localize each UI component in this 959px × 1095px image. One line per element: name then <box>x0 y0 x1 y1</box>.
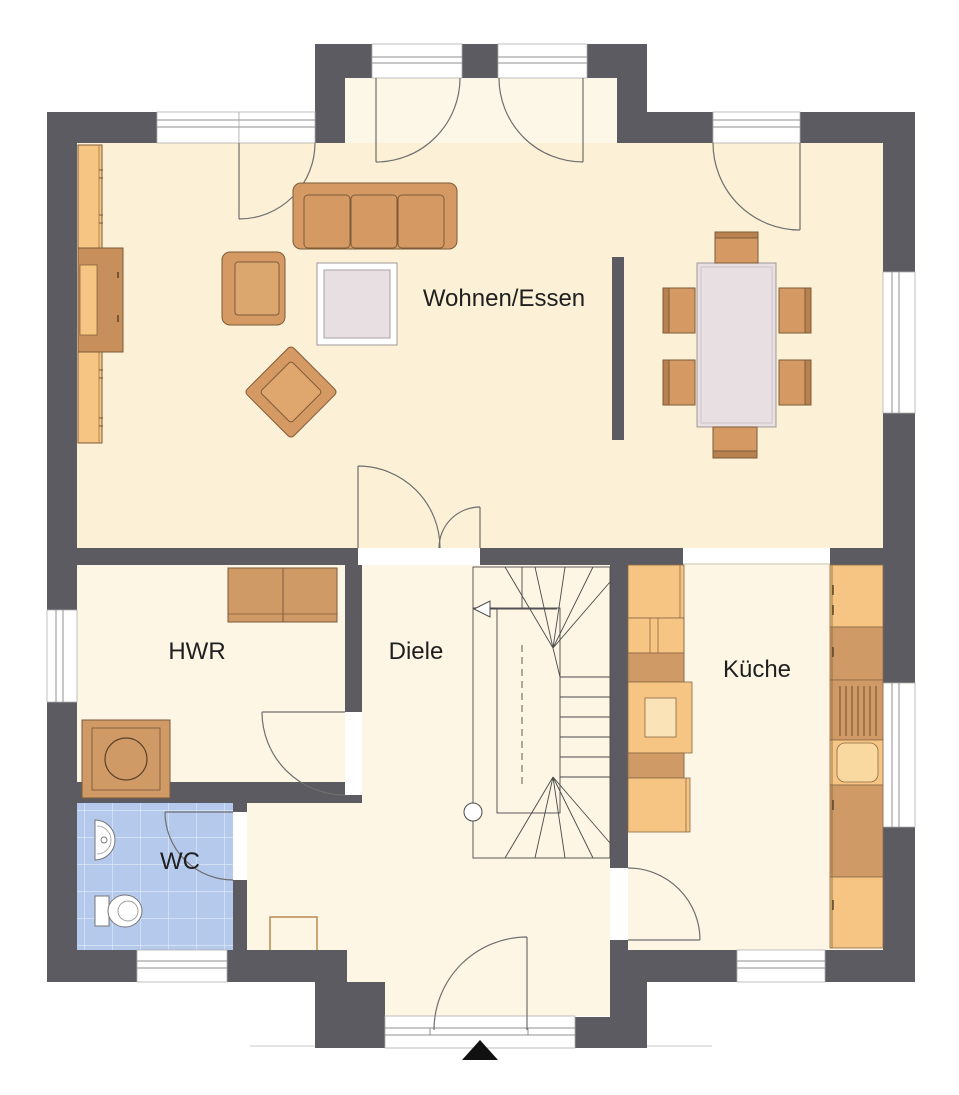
kitchen-cabinet <box>628 778 690 832</box>
kitchen-cabinet <box>830 785 883 877</box>
entrance-pier-right-step <box>575 1017 610 1048</box>
window-right-living <box>883 272 915 413</box>
room-label-wohnen-essen: Wohnen/Essen <box>423 285 585 312</box>
kitchen-island-hob <box>628 682 692 753</box>
stair-start-circle-icon <box>464 803 482 821</box>
entrance-pier-right <box>610 982 647 1048</box>
window-bottom-kitchen <box>737 950 825 982</box>
window-hwr-left <box>47 610 77 702</box>
kitchen-cabinet <box>628 753 684 778</box>
wall-diele-kueche <box>610 565 628 868</box>
wall-living-south-c <box>830 548 883 565</box>
floor-plan: Wohnen/Essen HWR Diele Küche WC <box>0 0 959 1095</box>
wall-hwr-diele <box>345 565 362 712</box>
dining-table <box>697 263 776 427</box>
kitchen-cabinet <box>628 565 684 618</box>
tv-lowboard <box>78 248 123 352</box>
floor-bay <box>345 78 617 143</box>
room-divider-wall <box>612 257 624 440</box>
room-label-hwr: HWR <box>168 638 225 665</box>
entrance-pier-left <box>315 982 385 1048</box>
window-right-kitchen <box>883 683 915 827</box>
window-top-left <box>157 112 239 143</box>
armchair <box>222 252 285 325</box>
floor-plan-svg: Wohnen/Essen HWR Diele Küche WC <box>0 0 959 1095</box>
window-bottom-wc <box>137 950 227 982</box>
wall-living-south-b <box>480 548 683 565</box>
kitchen-cooktop-lines <box>830 680 883 740</box>
kitchen-sink <box>830 740 883 785</box>
kitchen-cabinet <box>830 565 883 627</box>
wall-bay-top <box>315 44 647 78</box>
room-label-wc: WC <box>160 848 200 875</box>
wall-wc-diele-stub <box>233 803 247 812</box>
kitchen-cabinet <box>628 618 684 653</box>
kitchen-cabinet <box>830 627 883 680</box>
sofa <box>293 183 457 249</box>
coffee-table <box>317 263 397 345</box>
toilet <box>95 895 142 927</box>
hwr-cabinet <box>228 568 337 622</box>
wall-diele-kueche-stub <box>610 940 628 952</box>
kitchen-cabinet <box>628 653 684 682</box>
wall-left <box>47 112 77 982</box>
room-label-kueche: Küche <box>723 656 791 683</box>
wall-right <box>883 112 915 982</box>
wall-wc-diele <box>233 880 247 950</box>
wall-living-south-a <box>47 548 358 565</box>
kitchen-cabinet <box>830 877 883 948</box>
room-label-diele: Diele <box>389 638 444 665</box>
washing-machine <box>82 720 170 798</box>
